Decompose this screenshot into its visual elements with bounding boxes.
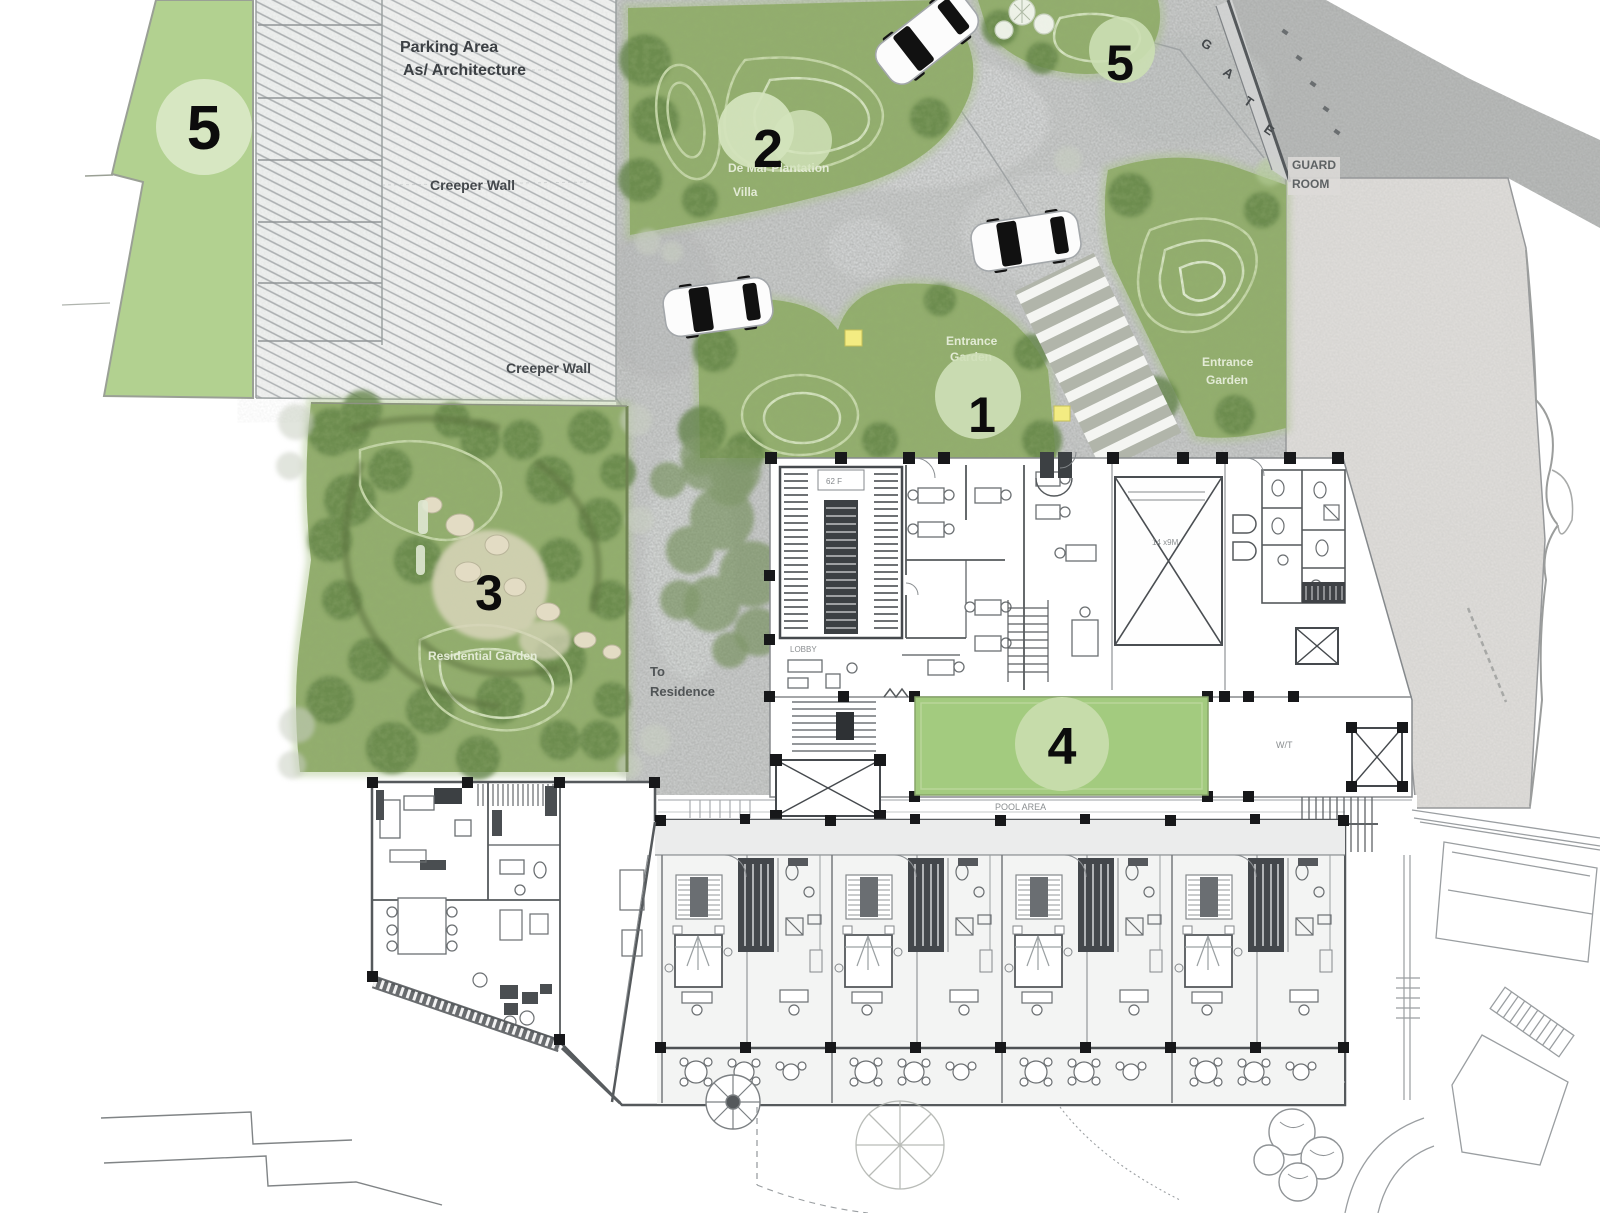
- svg-text:5: 5: [187, 94, 221, 163]
- svg-text:1: 1: [968, 387, 996, 443]
- svg-text:Villa: Villa: [733, 185, 758, 199]
- svg-text:W/T: W/T: [1276, 740, 1293, 750]
- svg-text:ROOM: ROOM: [1292, 177, 1329, 191]
- svg-text:Entrance: Entrance: [946, 334, 998, 348]
- svg-text:POOL AREA: POOL AREA: [995, 802, 1046, 812]
- svg-text:Residence: Residence: [650, 684, 715, 699]
- svg-text:2: 2: [753, 119, 783, 179]
- svg-text:To: To: [650, 664, 665, 679]
- svg-text:Creeper Wall: Creeper Wall: [506, 360, 591, 376]
- svg-text:4: 4: [1048, 718, 1077, 776]
- svg-text:As/ Architecture: As/ Architecture: [403, 62, 526, 79]
- svg-text:LOBBY: LOBBY: [790, 645, 817, 654]
- svg-text:Entrance: Entrance: [1202, 355, 1254, 369]
- svg-text:5: 5: [1106, 35, 1134, 91]
- svg-text:Residential Garden: Residential Garden: [428, 649, 537, 663]
- svg-text:3: 3: [475, 565, 503, 621]
- svg-text:14 x9M: 14 x9M: [1152, 538, 1179, 547]
- svg-text:Creeper Wall: Creeper Wall: [430, 177, 515, 193]
- svg-text:62 F: 62 F: [826, 477, 842, 486]
- svg-text:GUARD: GUARD: [1292, 158, 1336, 172]
- svg-text:Garden: Garden: [1206, 373, 1248, 387]
- svg-text:Parking Area: Parking Area: [400, 39, 498, 56]
